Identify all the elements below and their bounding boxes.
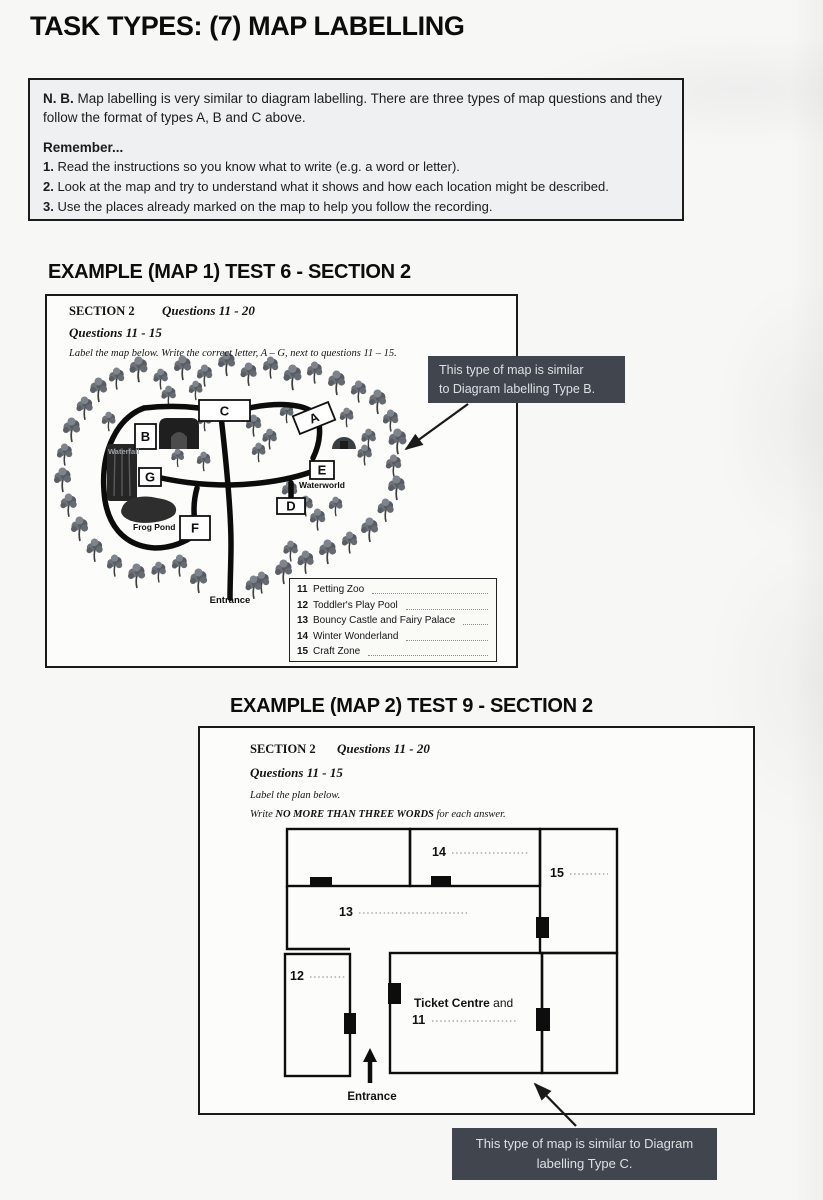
map2-instruction1: Label the plan below. (250, 790, 340, 801)
tree-icon (240, 363, 256, 386)
svg-text:B: B (141, 429, 150, 444)
tree-icon (369, 390, 386, 415)
questions-list-box: 11Petting Zoo 12Toddler's Play Pool 13Bo… (289, 578, 497, 662)
tree-icon (357, 445, 372, 466)
door (431, 876, 451, 886)
tree-icon (386, 455, 401, 477)
map-label-box-e: E (310, 461, 334, 479)
tree-icon (76, 397, 92, 420)
map1-questions-range: Questions 11 - 20 (162, 303, 255, 319)
svg-text:E: E (318, 463, 327, 478)
map2-exercise-box: 14 15 13 12 Ticket Centre and 11 Entranc… (198, 726, 755, 1115)
tree-icon (172, 555, 187, 577)
tree-icon (377, 499, 393, 522)
tree-icon (71, 517, 88, 542)
example1-heading: EXAMPLE (MAP 1) TEST 6 - SECTION 2 (48, 261, 411, 284)
tree-icon (319, 540, 336, 565)
tree-icon (361, 518, 378, 543)
svg-text:F: F (191, 521, 199, 536)
answer-dotted-line (406, 640, 488, 641)
nb-note-box: N. B. Map labelling is very similar to d… (28, 78, 684, 221)
frog-pond-illustration (121, 496, 176, 522)
map-label-box-c: C (199, 400, 250, 421)
tree-icon (130, 356, 148, 382)
question-row: 13Bouncy Castle and Fairy Palace (297, 615, 490, 627)
waterworld-label: Waterworld (299, 480, 345, 490)
question-row: 12Toddler's Play Pool (297, 600, 490, 612)
tree-icon (342, 532, 357, 554)
tree-icon (252, 443, 266, 463)
answer-dotted-line (368, 655, 488, 656)
tree-icon (151, 562, 166, 583)
tree-icon (60, 494, 76, 517)
map1-exercise-box: C A B G E D F (45, 294, 518, 668)
entrance-label-map2: Entrance (347, 1091, 396, 1103)
answer-dotted-line (463, 624, 488, 625)
tree-icon (90, 378, 107, 403)
room-11-label: 11 (412, 1013, 425, 1027)
tree-icon (171, 449, 184, 467)
ticket-centre-label: Ticket Centre and (414, 996, 513, 1010)
map1-section-label: SECTION 2 (69, 304, 135, 319)
floor-plan-illustration: 14 15 13 12 Ticket Centre and 11 Entranc… (200, 728, 753, 1113)
tree-icon (174, 356, 191, 381)
map2-instruction2: Write NO MORE THAN THREE WORDS for each … (250, 809, 506, 820)
tree-icon (263, 357, 278, 379)
svg-text:D: D (286, 499, 295, 514)
tree-icon (262, 429, 277, 450)
door (344, 1013, 356, 1034)
tree-icon (54, 468, 71, 493)
svg-text:C: C (220, 404, 230, 419)
tree-icon (109, 368, 124, 390)
tree-icon (128, 564, 145, 589)
tree-icon (197, 452, 211, 472)
map-label-box-f: F (180, 516, 210, 540)
waterfall-label: Waterfall (108, 447, 139, 456)
scanned-textbook-page: { "page": { "title": "TASK TYPES: (7) MA… (0, 0, 823, 1200)
tree-icon (383, 410, 398, 432)
question-row: 11Petting Zoo (297, 584, 490, 596)
room-14-label: 14 (432, 845, 446, 859)
tree-icon (189, 381, 203, 401)
door (310, 877, 332, 887)
frog-pond-label: Frog Pond (133, 522, 176, 532)
door (536, 917, 549, 938)
map2-section-label: SECTION 2 (250, 742, 316, 757)
remember-item: 1. Read the instructions so you know wha… (43, 157, 668, 177)
callout-type-b: This type of map is similar to Diagram l… (428, 356, 625, 403)
tree-icon (297, 551, 313, 574)
plan-room-labels: 14 15 13 12 Ticket Centre and 11 (290, 845, 564, 1027)
door (388, 983, 401, 1004)
nb-label: N. B. (43, 91, 74, 106)
map-label-box-d: D (277, 498, 305, 514)
tree-icon (307, 362, 322, 384)
entrance-label-map1: Entrance (210, 595, 251, 606)
remember-heading: Remember... (43, 138, 668, 157)
room-12-label: 12 (290, 969, 304, 983)
tree-icon (102, 412, 116, 432)
map1-sub-range: Questions 11 - 15 (69, 325, 162, 341)
room-15-label: 15 (550, 866, 564, 880)
question-row: 15Craft Zone (297, 646, 490, 658)
tree-icon (190, 569, 207, 594)
tree-icon (283, 541, 298, 562)
remember-item: 2. Look at the map and try to understand… (43, 177, 668, 197)
answer-dotted-line (372, 593, 488, 594)
tree-icon (388, 476, 405, 501)
tree-icon (329, 497, 343, 517)
map2-questions-range: Questions 11 - 20 (337, 741, 430, 757)
room-13-label: 13 (339, 905, 353, 919)
tree-icon (57, 444, 72, 466)
door (536, 1008, 550, 1031)
tree-icon (153, 369, 168, 390)
answer-dotted-line (406, 609, 488, 610)
tree-icon (284, 364, 302, 390)
page-title: TASK TYPES: (7) MAP LABELLING (30, 11, 464, 42)
tree-icon (310, 509, 325, 531)
example2-heading: EXAMPLE (MAP 2) TEST 9 - SECTION 2 (230, 695, 593, 718)
svg-text:G: G (145, 470, 155, 485)
tree-icon (86, 539, 102, 562)
question-row: 14Winter Wonderland (297, 631, 490, 643)
castle-arch (171, 432, 187, 449)
callout-type-c: This type of map is similar to Diagram l… (452, 1128, 717, 1180)
tree-icon (389, 428, 407, 454)
tree-icon (107, 555, 122, 577)
map-label-box-g: G (139, 468, 161, 486)
map2-sub-range: Questions 11 - 15 (250, 765, 343, 781)
tree-icon (351, 381, 366, 403)
tree-icon (63, 418, 80, 443)
tree-icon (340, 408, 354, 428)
tree-icon (161, 386, 176, 407)
tree-icon (328, 371, 345, 396)
nb-paragraph: N. B. Map labelling is very similar to d… (43, 89, 668, 127)
map1-instruction: Label the map below. Write the correct l… (69, 348, 397, 359)
plan-walls (285, 829, 617, 1076)
remember-item: 3. Use the places already marked on the … (43, 197, 668, 217)
map-label-box-b: B (135, 424, 156, 449)
